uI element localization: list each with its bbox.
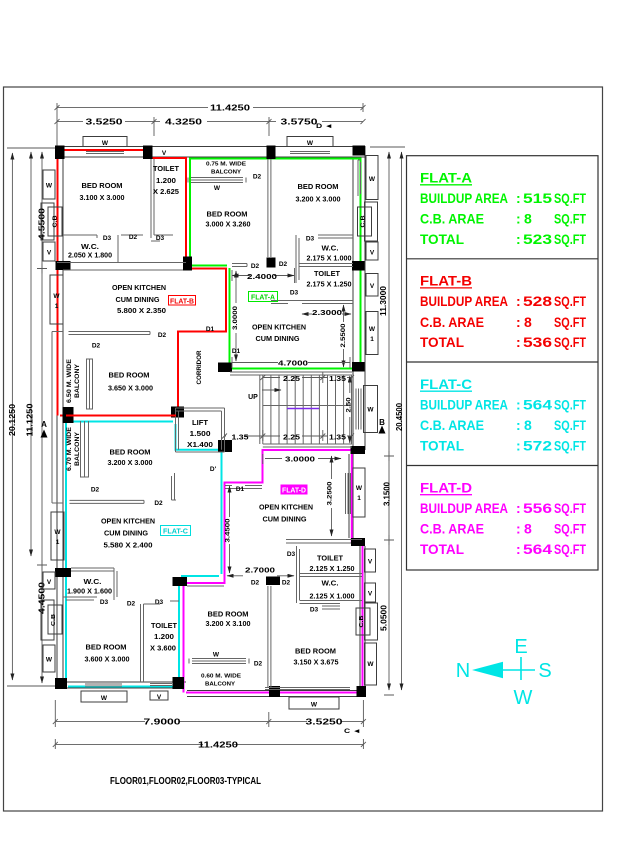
svg-text:D3: D3 [306,236,315,243]
svg-text:4.7000: 4.7000 [278,361,308,368]
svg-text:1.200: 1.200 [154,634,174,641]
svg-text:FLAT-D: FLAT-D [282,488,306,495]
svg-text:BED ROOM: BED ROOM [295,647,336,656]
svg-text:11.1250: 11.1250 [26,403,35,437]
svg-text:564: 564 [523,541,552,557]
svg-text:FLAT-C: FLAT-C [163,529,188,536]
svg-text:SQ.FT: SQ.FT [554,500,586,516]
svg-text:W.C.: W.C. [322,581,339,588]
svg-text:D3: D3 [100,599,109,606]
svg-text:W: W [54,529,61,536]
svg-text:536: 536 [523,334,552,350]
svg-text:C.B: C.B [361,215,367,227]
svg-text:D1: D1 [232,348,241,355]
svg-text:3.200 X 3.100: 3.200 X 3.100 [206,619,251,628]
svg-text:OPEN KITCHEN: OPEN KITCHEN [259,503,313,512]
svg-text:TOILET: TOILET [317,556,344,563]
svg-text:OPEN KITCHEN: OPEN KITCHEN [112,283,166,292]
svg-text:W: W [311,702,318,709]
svg-text:FLAT-A: FLAT-A [251,295,275,302]
svg-text:11.4250: 11.4250 [210,104,251,113]
svg-text:C.B: C.B [359,615,365,627]
svg-text::: : [516,396,521,412]
svg-text::: : [516,521,521,537]
svg-text:1: 1 [357,495,361,502]
svg-text:SQ.FT: SQ.FT [554,231,586,247]
svg-text:2.3000: 2.3000 [312,310,342,317]
svg-text:W: W [53,293,60,300]
svg-text:3.5750: 3.5750 [281,118,319,127]
svg-text:2.25: 2.25 [283,376,300,383]
svg-text:3.200 X 3.000: 3.200 X 3.000 [296,195,341,204]
svg-text:D2: D2 [91,487,100,494]
svg-text:D2: D2 [158,332,167,339]
svg-text:V: V [368,591,373,598]
svg-text:D3: D3 [103,235,112,242]
svg-text::: : [516,437,521,453]
svg-text:D1: D1 [206,326,215,333]
svg-text:D2: D2 [251,263,260,270]
svg-text:BALCONY: BALCONY [75,432,81,466]
svg-text:2.5500: 2.5500 [341,323,347,348]
svg-text:W: W [213,652,220,659]
svg-text:D3: D3 [310,607,319,614]
svg-text:TOTAL: TOTAL [420,231,464,247]
svg-text:BUILDUP AREA: BUILDUP AREA [420,500,508,516]
svg-text:OPEN KITCHEN: OPEN KITCHEN [101,517,155,526]
svg-text:W.C.: W.C. [81,244,99,251]
svg-text:A: A [41,420,47,429]
svg-text:2.7000: 2.7000 [245,568,275,575]
svg-text:3.2500: 3.2500 [328,481,334,506]
svg-text:3.1500: 3.1500 [383,481,392,506]
svg-text:2.4000: 2.4000 [247,274,277,281]
svg-text:3.000 X 3.260: 3.000 X 3.260 [206,220,251,229]
svg-text:X 3.600: X 3.600 [150,646,176,653]
svg-text:V: V [47,250,52,257]
svg-text:7.9000: 7.9000 [144,717,182,726]
svg-text:OPEN KITCHEN: OPEN KITCHEN [252,323,306,332]
svg-text:3.200 X 3.000: 3.200 X 3.000 [108,458,153,467]
svg-text::: : [516,541,521,557]
svg-text:FLAT-C: FLAT-C [420,376,472,392]
svg-text:D3: D3 [155,599,164,606]
svg-text:C ◄: C ◄ [344,728,361,735]
svg-text:LIFT: LIFT [192,420,209,427]
svg-text:B: B [379,418,385,427]
svg-text:5.0500: 5.0500 [380,604,389,631]
svg-text:20.1250: 20.1250 [8,403,17,436]
svg-text:FLAT-B: FLAT-B [420,273,472,289]
svg-text:CUM DINING: CUM DINING [256,334,300,343]
svg-text:C.B. ARAE: C.B. ARAE [420,521,484,537]
svg-text:3.650 X 3.000: 3.650 X 3.000 [108,384,153,393]
svg-text:1.35: 1.35 [329,435,346,442]
svg-text:BED ROOM: BED ROOM [110,448,151,457]
svg-text:3.0000: 3.0000 [285,457,315,464]
svg-text:V: V [162,150,167,157]
svg-text::: : [516,190,521,206]
svg-text:3.600 X 3.000: 3.600 X 3.000 [85,655,130,664]
svg-text:CUM DINING: CUM DINING [104,529,148,538]
svg-text:D2: D2 [282,580,291,587]
svg-text:D2: D2 [92,343,101,350]
svg-text:BED ROOM: BED ROOM [86,643,127,652]
svg-text:D2: D2 [251,580,260,587]
svg-text:D3: D3 [287,551,296,558]
svg-text:BED ROOM: BED ROOM [82,181,123,190]
svg-text:3.4500: 3.4500 [226,518,232,543]
svg-text:V: V [47,579,52,586]
svg-text:TOTAL: TOTAL [420,541,464,557]
svg-text:BED ROOM: BED ROOM [208,610,249,619]
svg-text:V: V [370,250,375,257]
svg-text:5.800 X 2.350: 5.800 X 2.350 [117,306,166,315]
svg-text:11.4250: 11.4250 [198,740,239,749]
svg-text:1: 1 [56,539,60,546]
svg-text:E: E [514,636,527,658]
svg-text:W.C.: W.C. [84,579,102,586]
svg-text:515: 515 [523,190,552,206]
svg-text:W: W [46,657,53,664]
svg-text:523: 523 [523,231,552,247]
svg-text:FLAT-D: FLAT-D [420,479,472,495]
svg-text:1: 1 [370,336,374,343]
svg-text:TOILET: TOILET [153,166,180,173]
svg-text:D2: D2 [154,500,163,507]
svg-text:W: W [369,326,376,333]
svg-text:W: W [307,140,314,147]
svg-text:CORRIDOR: CORRIDOR [196,350,203,384]
svg-text:N: N [456,660,470,682]
svg-text:D': D' [210,466,217,473]
svg-text:TOTAL: TOTAL [420,437,464,453]
svg-text:SQ.FT: SQ.FT [554,334,586,350]
svg-text:4.4500: 4.4500 [38,581,47,614]
svg-text:2.125 X 1.000: 2.125 X 1.000 [310,594,355,601]
svg-text:BUILDUP AREA: BUILDUP AREA [420,396,508,412]
svg-text:D2: D2 [253,174,262,181]
svg-text:8: 8 [524,211,532,227]
svg-text:C.B: C.B [51,614,57,626]
svg-text:6.70 M. WIDE: 6.70 M. WIDE [67,427,73,471]
svg-text::: : [516,417,521,433]
svg-text:FLAT-A: FLAT-A [420,170,472,186]
svg-text:1.35: 1.35 [329,376,346,383]
svg-text:BALCONY: BALCONY [205,682,235,688]
svg-text:W: W [46,183,53,190]
svg-text:0.60 M. WIDE: 0.60 M. WIDE [201,674,241,680]
svg-text:572: 572 [523,437,552,453]
svg-text:2.175 X 1.250: 2.175 X 1.250 [307,282,352,289]
svg-text:3.5250: 3.5250 [86,118,124,127]
svg-text:X 2.625: X 2.625 [153,189,179,196]
svg-text:W: W [367,407,374,414]
svg-text:BUILDUP AREA: BUILDUP AREA [420,293,508,309]
svg-text:556: 556 [523,500,552,516]
svg-text:C.B. ARAE: C.B. ARAE [420,211,484,227]
svg-text:BED ROOM: BED ROOM [298,182,339,191]
svg-text:1.900 X 1.600: 1.900 X 1.600 [67,589,112,596]
svg-text:0.75 M. WIDE: 0.75 M. WIDE [206,162,246,168]
svg-text:D2: D2 [129,234,138,241]
svg-text:W: W [367,661,374,668]
svg-text:FLAT-B: FLAT-B [170,299,194,306]
svg-text:D3: D3 [290,290,299,297]
svg-text:X1.400: X1.400 [187,442,213,449]
svg-text:8: 8 [524,521,532,537]
svg-text:2.050 X 1.800: 2.050 X 1.800 [68,253,112,260]
svg-text:W: W [101,695,108,702]
svg-text::: : [516,334,521,350]
svg-text:1.500: 1.500 [190,431,211,438]
svg-text:UP: UP [248,394,258,401]
svg-text::: : [516,211,521,227]
svg-text:V: V [370,283,375,290]
svg-text:8: 8 [524,417,532,433]
svg-text:CUM DINING: CUM DINING [116,295,160,304]
svg-text:S: S [538,660,551,682]
svg-text:W.C.: W.C. [322,246,339,253]
svg-text:4.5500: 4.5500 [38,207,47,240]
svg-text:2.125 X 1.250: 2.125 X 1.250 [310,566,355,573]
svg-text:SQ.FT: SQ.FT [554,190,586,206]
svg-text:SQ.FT: SQ.FT [554,437,586,453]
svg-text:D2: D2 [254,661,263,668]
svg-text::: : [516,314,521,330]
svg-text:C.B. ARAE: C.B. ARAE [420,417,484,433]
svg-text:1: 1 [55,303,59,310]
svg-text:W: W [102,140,109,147]
svg-text:W: W [369,176,376,183]
svg-text:5.580 X 2.400: 5.580 X 2.400 [104,541,153,550]
svg-text:W: W [514,687,533,709]
svg-text:SQ.FT: SQ.FT [554,211,586,227]
svg-text:SQ.FT: SQ.FT [554,314,586,330]
svg-text:TOTAL: TOTAL [420,334,464,350]
svg-text:20.4500: 20.4500 [395,402,404,431]
svg-text:SQ.FT: SQ.FT [554,293,586,309]
svg-text:D ◄: D ◄ [316,123,333,130]
svg-text:2.50: 2.50 [347,397,353,413]
svg-text:C.B. ARAE: C.B. ARAE [420,314,484,330]
svg-text:BED ROOM: BED ROOM [109,371,150,380]
svg-text:V: V [157,694,162,701]
svg-text:BED ROOM: BED ROOM [207,210,248,219]
svg-text:V: V [368,559,373,566]
svg-text:SQ.FT: SQ.FT [554,521,586,537]
svg-text:W: W [214,185,221,192]
svg-text:SQ.FT: SQ.FT [554,417,586,433]
svg-text:C.B: C.B [53,215,59,227]
svg-text:D2: D2 [279,261,288,268]
svg-text:4.3250: 4.3250 [165,118,203,127]
svg-text:8: 8 [524,314,532,330]
svg-text:3.100 X 3.000: 3.100 X 3.000 [80,193,125,202]
svg-text:D1: D1 [236,486,245,493]
svg-text:2.175 X 1.000: 2.175 X 1.000 [307,256,352,263]
svg-text:564: 564 [523,396,552,412]
svg-text:3.5250: 3.5250 [306,717,344,726]
svg-text:W: W [356,485,363,492]
svg-text:TOILET: TOILET [314,271,341,278]
svg-text:3.0000: 3.0000 [233,305,239,330]
svg-text::: : [516,293,521,309]
svg-text:BUILDUP AREA: BUILDUP AREA [420,190,508,206]
svg-text:D3: D3 [156,235,165,242]
svg-text:SQ.FT: SQ.FT [554,541,586,557]
svg-text:6.50 M. WIDE: 6.50 M. WIDE [67,359,73,403]
svg-text:D2: D2 [127,601,136,608]
svg-text:528: 528 [523,293,552,309]
svg-text:3.150 X 3.675: 3.150 X 3.675 [294,658,339,667]
svg-text::: : [516,500,521,516]
svg-text:2.25: 2.25 [283,435,300,442]
svg-text:CUM DINING: CUM DINING [263,515,307,524]
svg-text:11.3000: 11.3000 [379,285,388,316]
svg-text:BALCONY: BALCONY [75,364,81,398]
svg-text:BALCONY: BALCONY [211,170,241,176]
svg-text::: : [516,231,521,247]
svg-text:TOILET: TOILET [151,623,178,630]
svg-text:SQ.FT: SQ.FT [554,396,586,412]
svg-text:1.200: 1.200 [156,178,176,185]
svg-text:FLOOR01,FLOOR02,FLOOR03-TYPICA: FLOOR01,FLOOR02,FLOOR03-TYPICAL [110,775,261,787]
svg-text:1.35: 1.35 [232,435,249,442]
